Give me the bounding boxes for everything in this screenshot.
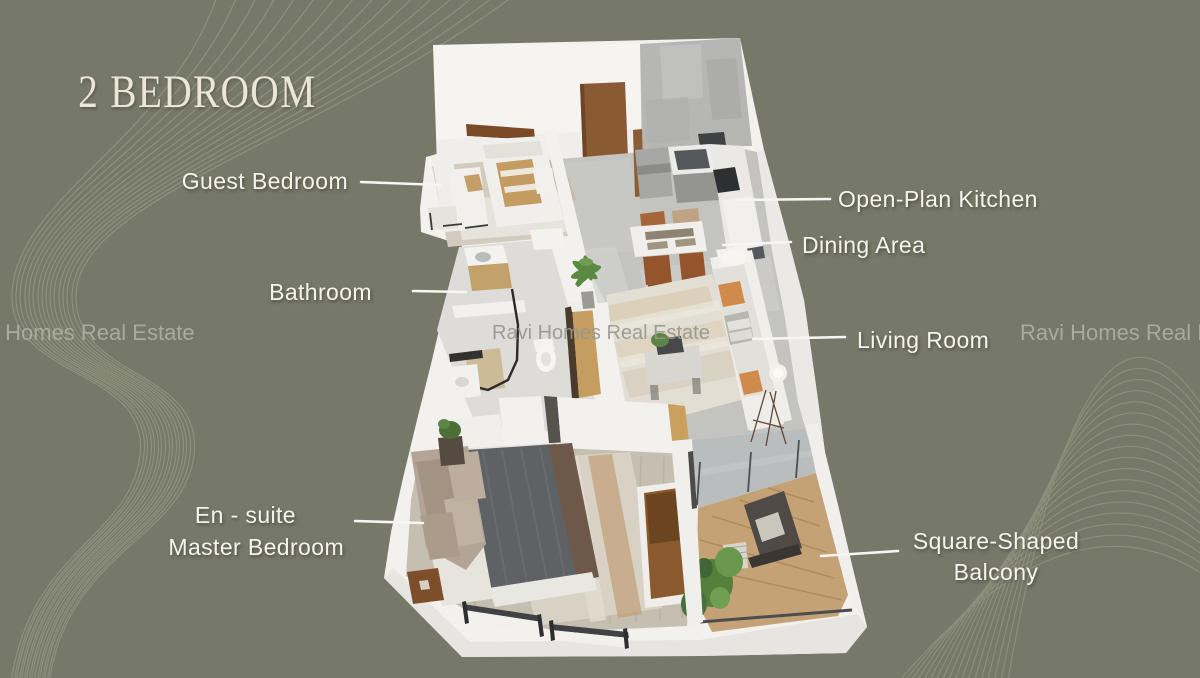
svg-text:Bathroom: Bathroom <box>269 279 372 305</box>
svg-text:Ravi Homes Real Estate: Ravi Homes Real Estate <box>0 320 195 345</box>
svg-text:Master Bedroom: Master Bedroom <box>168 534 344 560</box>
svg-text:Ravi Homes Real Estate: Ravi Homes Real Estate <box>492 322 710 344</box>
svg-text:Dining Area: Dining Area <box>802 232 925 258</box>
svg-text:2 BEDROOM: 2 BEDROOM <box>78 66 316 118</box>
svg-text:Living Room: Living Room <box>857 327 989 353</box>
svg-text:Guest Bedroom: Guest Bedroom <box>182 168 348 194</box>
svg-text:En - suite: En - suite <box>195 502 296 528</box>
svg-text:Open-Plan Kitchen: Open-Plan Kitchen <box>838 186 1038 212</box>
svg-text:Square-Shaped: Square-Shaped <box>913 528 1079 554</box>
svg-text:Balcony: Balcony <box>954 559 1039 585</box>
svg-text:Ravi Homes Real Estate: Ravi Homes Real Estate <box>1020 320 1200 345</box>
